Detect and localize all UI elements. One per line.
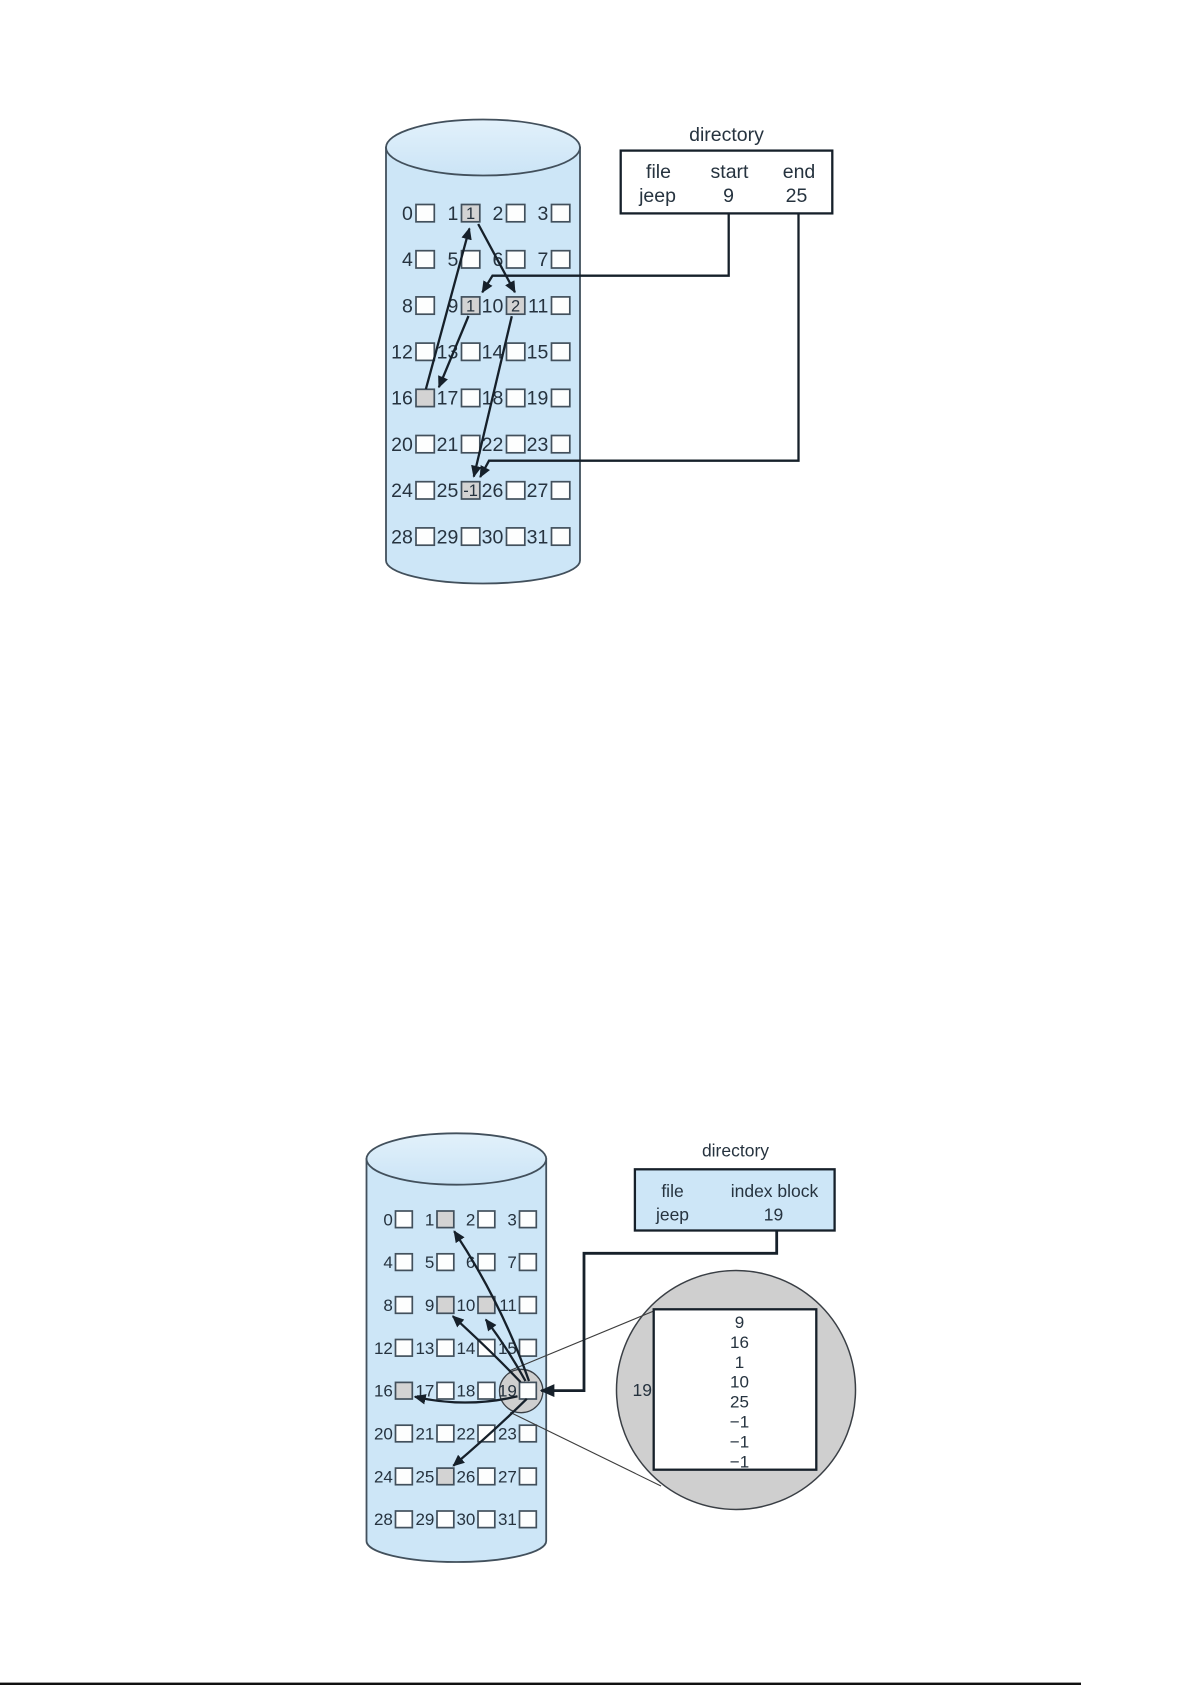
svg-text:file: file — [661, 1181, 683, 1201]
svg-text:25: 25 — [437, 480, 459, 502]
svg-text:jeep: jeep — [655, 1204, 689, 1224]
svg-text:1: 1 — [425, 1210, 434, 1229]
svg-text:27: 27 — [498, 1467, 517, 1486]
svg-text:−1: −1 — [730, 1452, 749, 1471]
svg-text:19: 19 — [764, 1204, 783, 1224]
svg-text:16: 16 — [374, 1382, 393, 1401]
svg-text:end: end — [783, 161, 816, 183]
svg-text:directory: directory — [702, 1141, 769, 1161]
svg-text:12: 12 — [374, 1339, 393, 1358]
svg-text:30: 30 — [482, 526, 504, 548]
svg-text:19: 19 — [633, 1380, 652, 1400]
svg-text:27: 27 — [527, 480, 549, 502]
svg-text:1: 1 — [466, 297, 475, 315]
svg-text:3: 3 — [537, 203, 548, 225]
svg-text:2: 2 — [466, 1210, 475, 1229]
svg-text:8: 8 — [383, 1296, 392, 1315]
svg-text:start: start — [711, 161, 750, 183]
svg-text:index block: index block — [731, 1181, 819, 1201]
svg-text:11: 11 — [528, 295, 548, 317]
svg-text:21: 21 — [415, 1425, 434, 1444]
svg-text:12: 12 — [391, 342, 413, 364]
svg-text:7: 7 — [507, 1253, 516, 1272]
svg-text:16: 16 — [730, 1333, 749, 1352]
svg-text:10: 10 — [482, 295, 504, 317]
svg-text:1: 1 — [466, 205, 475, 223]
svg-text:9: 9 — [425, 1296, 434, 1315]
svg-text:31: 31 — [498, 1510, 517, 1529]
svg-text:10: 10 — [730, 1373, 749, 1392]
svg-text:13: 13 — [437, 342, 459, 364]
svg-text:9: 9 — [723, 185, 734, 207]
svg-text:17: 17 — [437, 388, 459, 410]
svg-text:22: 22 — [482, 434, 504, 456]
svg-text:23: 23 — [527, 434, 549, 456]
svg-text:23: 23 — [498, 1425, 517, 1444]
svg-text:9: 9 — [735, 1313, 744, 1332]
svg-text:26: 26 — [456, 1467, 475, 1486]
svg-text:16: 16 — [391, 388, 413, 410]
svg-text:−1: −1 — [730, 1433, 749, 1452]
svg-text:28: 28 — [374, 1510, 393, 1529]
svg-text:19: 19 — [527, 388, 549, 410]
svg-text:30: 30 — [456, 1510, 475, 1529]
svg-text:5: 5 — [425, 1253, 434, 1272]
svg-text:1: 1 — [735, 1353, 744, 1372]
svg-text:24: 24 — [391, 480, 413, 502]
svg-text:29: 29 — [437, 526, 459, 548]
svg-text:8: 8 — [402, 295, 413, 317]
svg-text:31: 31 — [527, 526, 549, 548]
svg-text:2: 2 — [492, 203, 503, 225]
svg-text:14: 14 — [456, 1339, 475, 1358]
svg-text:jeep: jeep — [638, 185, 676, 207]
svg-text:13: 13 — [415, 1339, 434, 1358]
svg-text:15: 15 — [527, 342, 549, 364]
svg-text:4: 4 — [383, 1253, 392, 1272]
svg-text:7: 7 — [537, 249, 548, 271]
svg-text:5: 5 — [447, 249, 458, 271]
svg-text:1: 1 — [447, 203, 458, 225]
svg-text:25: 25 — [415, 1467, 434, 1486]
svg-text:3: 3 — [507, 1210, 516, 1229]
svg-text:18: 18 — [456, 1382, 475, 1401]
svg-text:14: 14 — [482, 342, 504, 364]
svg-text:25: 25 — [730, 1393, 749, 1412]
svg-text:0: 0 — [402, 203, 413, 225]
svg-text:20: 20 — [374, 1425, 393, 1444]
svg-text:2: 2 — [511, 297, 520, 315]
svg-text:file: file — [646, 161, 671, 183]
svg-text:11: 11 — [499, 1296, 517, 1315]
svg-text:21: 21 — [437, 434, 459, 456]
svg-text:25: 25 — [786, 185, 808, 207]
svg-text:directory: directory — [689, 124, 764, 146]
svg-text:28: 28 — [391, 526, 413, 548]
svg-text:10: 10 — [456, 1296, 475, 1315]
svg-text:20: 20 — [391, 434, 413, 456]
svg-text:0: 0 — [383, 1210, 392, 1229]
svg-text:-1: -1 — [463, 482, 478, 500]
svg-text:26: 26 — [482, 480, 504, 502]
svg-text:24: 24 — [374, 1467, 393, 1486]
svg-text:29: 29 — [415, 1510, 434, 1529]
svg-text:4: 4 — [402, 249, 413, 271]
svg-text:22: 22 — [456, 1425, 475, 1444]
svg-text:−1: −1 — [730, 1413, 749, 1432]
